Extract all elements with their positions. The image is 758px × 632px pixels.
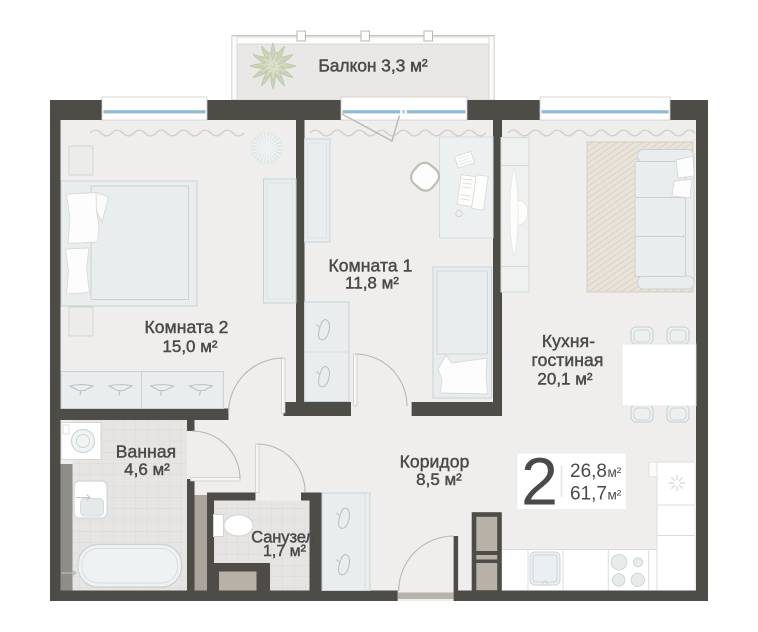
svg-text:15,0 м²: 15,0 м² — [162, 337, 217, 356]
svg-text:61,7: 61,7 — [570, 484, 607, 505]
svg-text:4,6 м²: 4,6 м² — [124, 460, 170, 479]
svg-text:м²: м² — [608, 488, 622, 503]
svg-text:Комната 1: Комната 1 — [328, 256, 412, 276]
svg-text:Ванная: Ванная — [116, 442, 177, 462]
svg-text:20,1 м²: 20,1 м² — [537, 370, 592, 389]
svg-text:1,7 м²: 1,7 м² — [263, 543, 307, 560]
svg-text:Кухня-: Кухня- — [542, 331, 595, 351]
svg-text:м²: м² — [608, 465, 622, 480]
svg-text:8,5 м²: 8,5 м² — [416, 470, 462, 489]
svg-text:26,8: 26,8 — [570, 461, 607, 482]
svg-text:Коридор: Коридор — [400, 452, 470, 472]
svg-text:Комната 2: Комната 2 — [144, 317, 228, 337]
svg-text:Балкон 3,3 м²: Балкон 3,3 м² — [318, 56, 428, 76]
svg-text:гостиная: гостиная — [532, 350, 604, 370]
svg-text:11,8 м²: 11,8 м² — [345, 274, 399, 293]
svg-text:2: 2 — [521, 446, 558, 520]
